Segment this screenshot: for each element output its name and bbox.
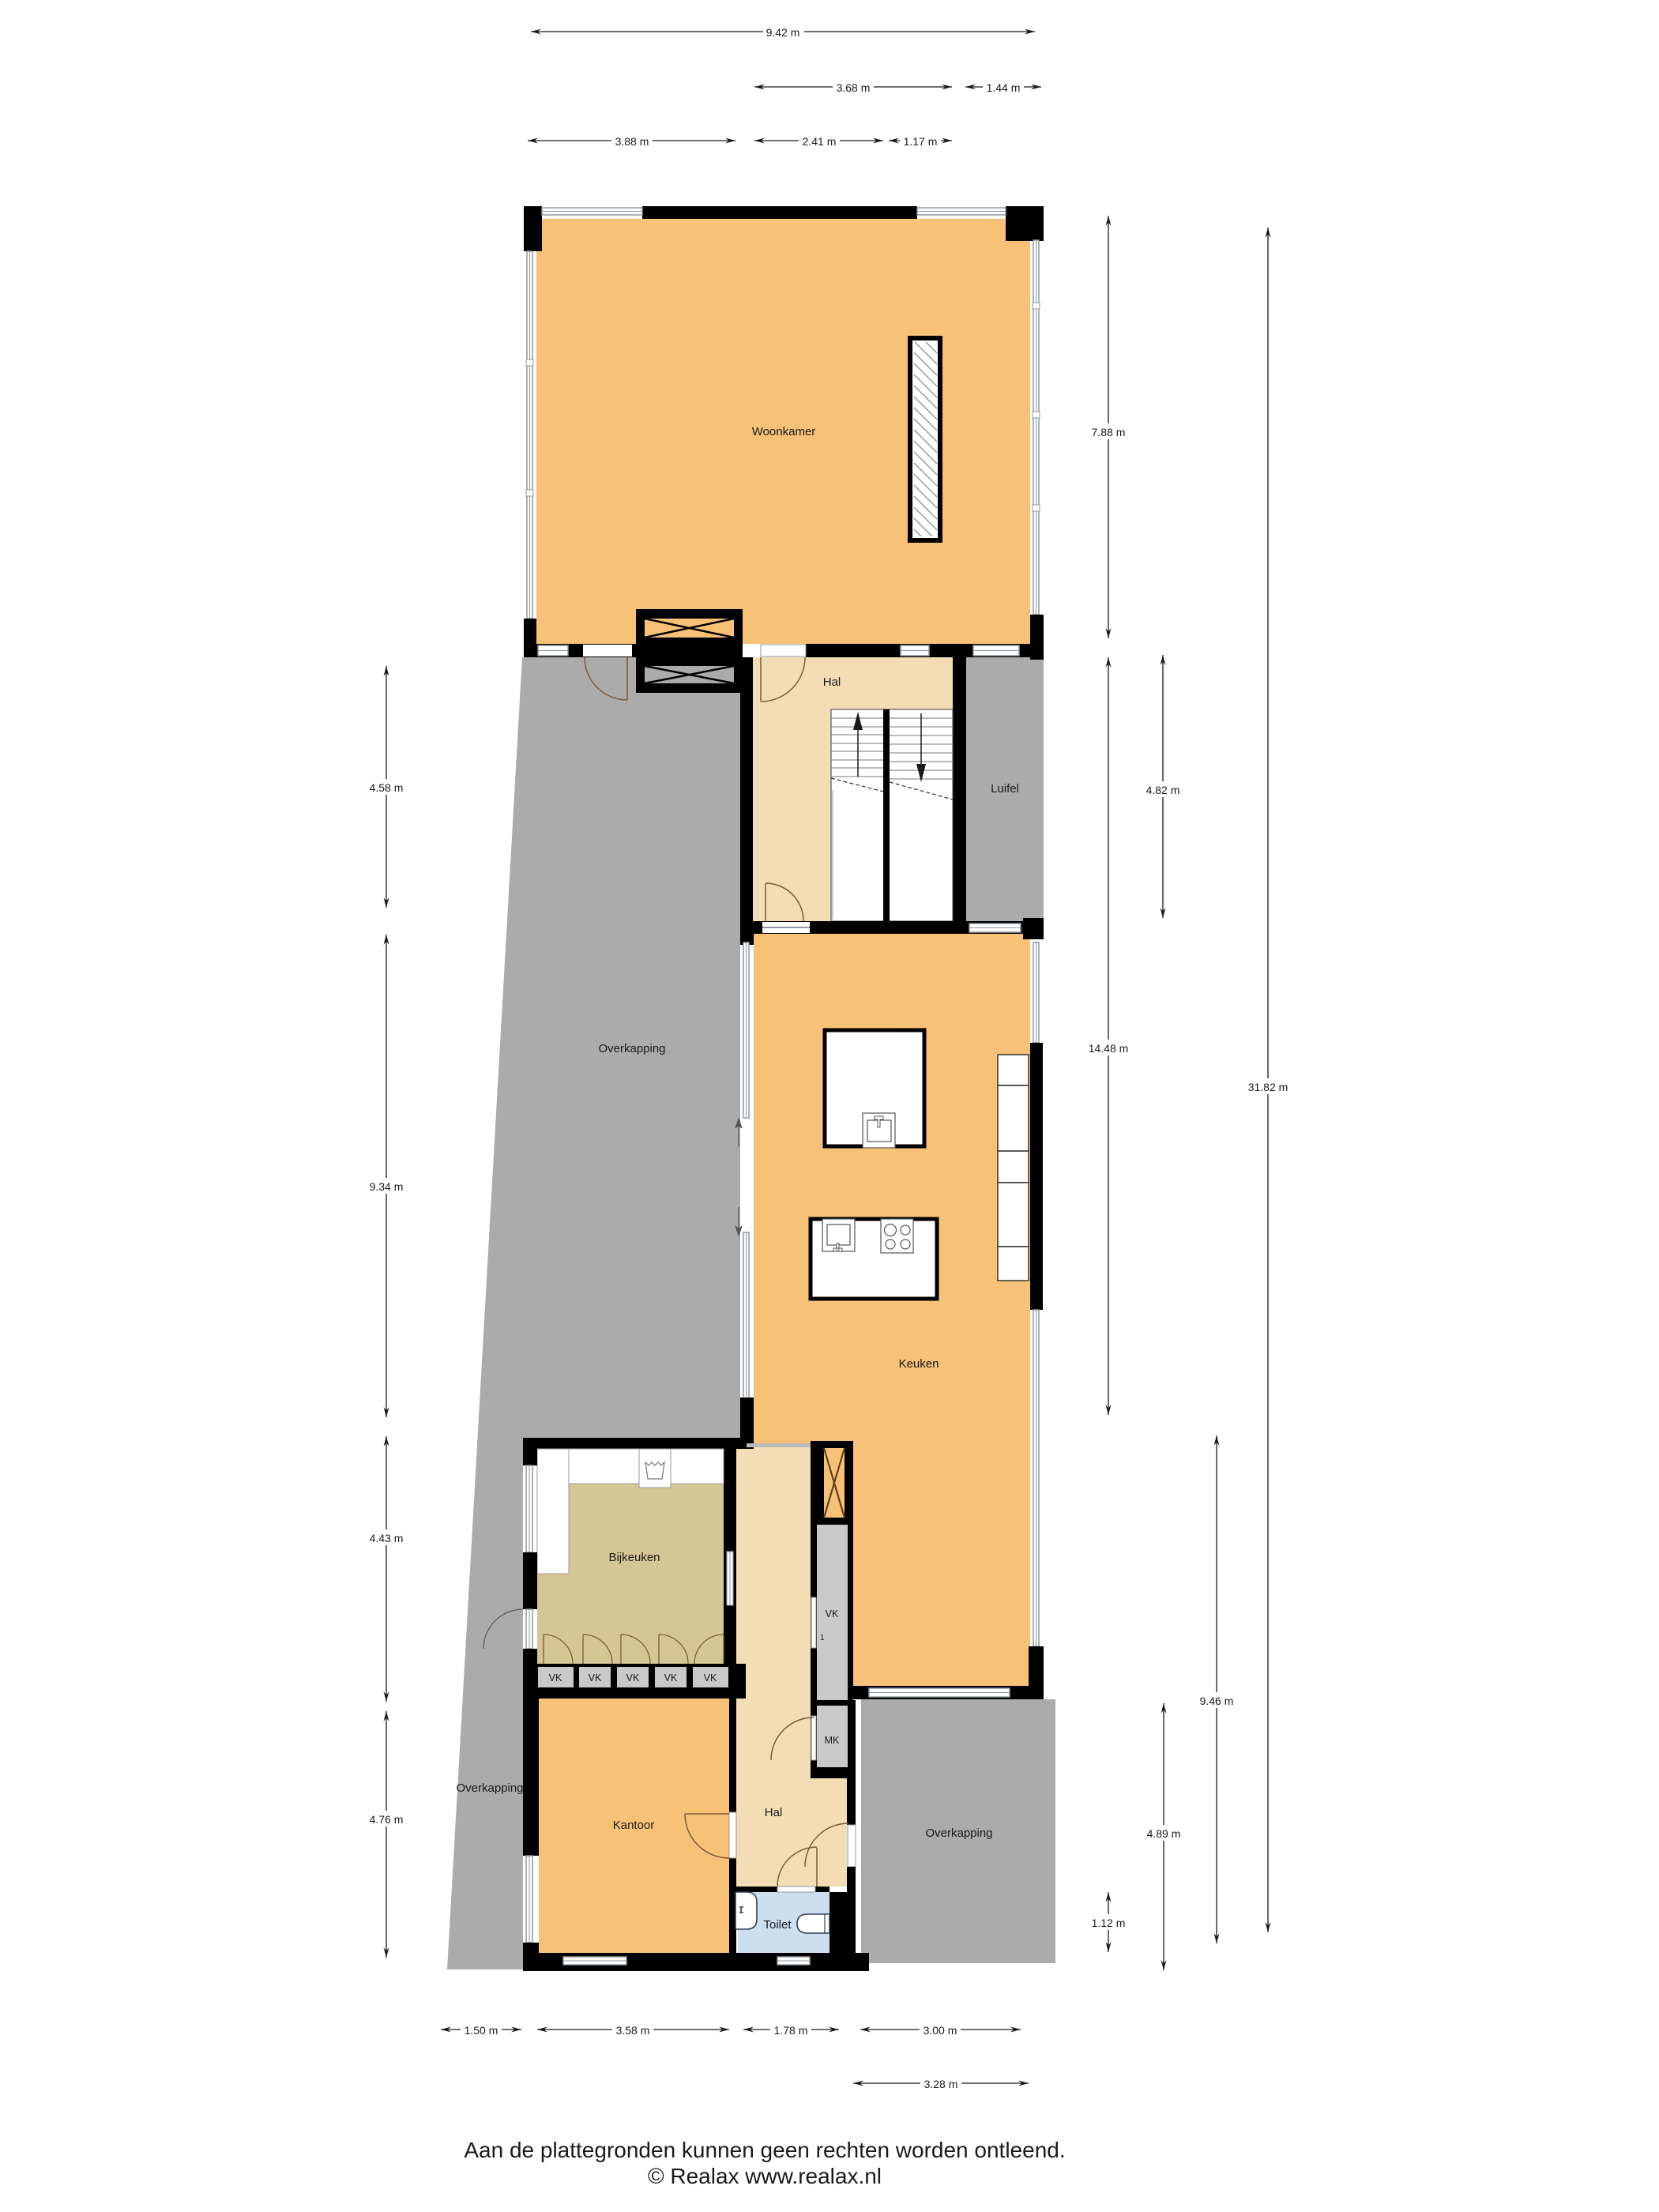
svg-text:Hal: Hal — [765, 1806, 783, 1819]
svg-text:Hal: Hal — [823, 675, 841, 689]
svg-text:9.42 m: 9.42 m — [766, 26, 800, 39]
svg-text:1.78 m: 1.78 m — [774, 2024, 808, 2037]
svg-text:VK: VK — [664, 1672, 678, 1683]
svg-text:1: 1 — [820, 1634, 825, 1642]
svg-text:1.17 m: 1.17 m — [904, 135, 938, 148]
svg-text:VK: VK — [826, 1608, 839, 1619]
svg-text:VK: VK — [704, 1672, 717, 1683]
svg-text:2.41 m: 2.41 m — [803, 135, 837, 148]
svg-text:3.58 m: 3.58 m — [616, 2024, 650, 2037]
svg-text:3.28 m: 3.28 m — [924, 2078, 958, 2090]
svg-text:4.89 m: 4.89 m — [1147, 1827, 1181, 1840]
svg-text:Toilet: Toilet — [763, 1918, 792, 1932]
svg-text:Keuken: Keuken — [899, 1357, 939, 1371]
svg-text:VK: VK — [626, 1672, 640, 1683]
svg-text:3.00 m: 3.00 m — [924, 2024, 957, 2037]
svg-text:MK: MK — [825, 1735, 840, 1746]
svg-text:31.82 m: 31.82 m — [1248, 1081, 1288, 1093]
svg-text:4.58 m: 4.58 m — [370, 781, 404, 794]
svg-text:7.88 m: 7.88 m — [1092, 426, 1126, 438]
svg-text:Kantoor: Kantoor — [613, 1819, 655, 1832]
svg-text:VK: VK — [589, 1672, 602, 1683]
svg-text:9.46 m: 9.46 m — [1200, 1695, 1234, 1707]
svg-text:Overkapping: Overkapping — [598, 1042, 665, 1055]
svg-text:4.82 m: 4.82 m — [1146, 784, 1180, 796]
svg-text:14.48 m: 14.48 m — [1089, 1042, 1129, 1055]
svg-text:1.44 m: 1.44 m — [987, 81, 1021, 94]
svg-text:3.88 m: 3.88 m — [615, 135, 649, 148]
svg-text:9.34 m: 9.34 m — [370, 1180, 404, 1193]
svg-text:1.50 m: 1.50 m — [465, 2024, 498, 2037]
svg-text:VK: VK — [549, 1672, 562, 1683]
svg-text:4.76 m: 4.76 m — [370, 1813, 404, 1826]
svg-text:4.43 m: 4.43 m — [370, 1532, 404, 1544]
svg-text:3.68 m: 3.68 m — [837, 81, 871, 94]
svg-text:© Realax www.realax.nl: © Realax www.realax.nl — [648, 2164, 882, 2188]
svg-text:1.12 m: 1.12 m — [1092, 1917, 1126, 1929]
svg-text:Overkapping: Overkapping — [925, 1826, 992, 1840]
svg-text:Luifel: Luifel — [991, 782, 1019, 796]
svg-text:Bijkeuken: Bijkeuken — [608, 1551, 660, 1564]
svg-text:Aan de plattegronden kunnen ge: Aan de plattegronden kunnen geen rechten… — [464, 2138, 1065, 2162]
svg-text:Woonkamer: Woonkamer — [752, 425, 816, 438]
svg-text:Overkapping: Overkapping — [456, 1781, 523, 1795]
